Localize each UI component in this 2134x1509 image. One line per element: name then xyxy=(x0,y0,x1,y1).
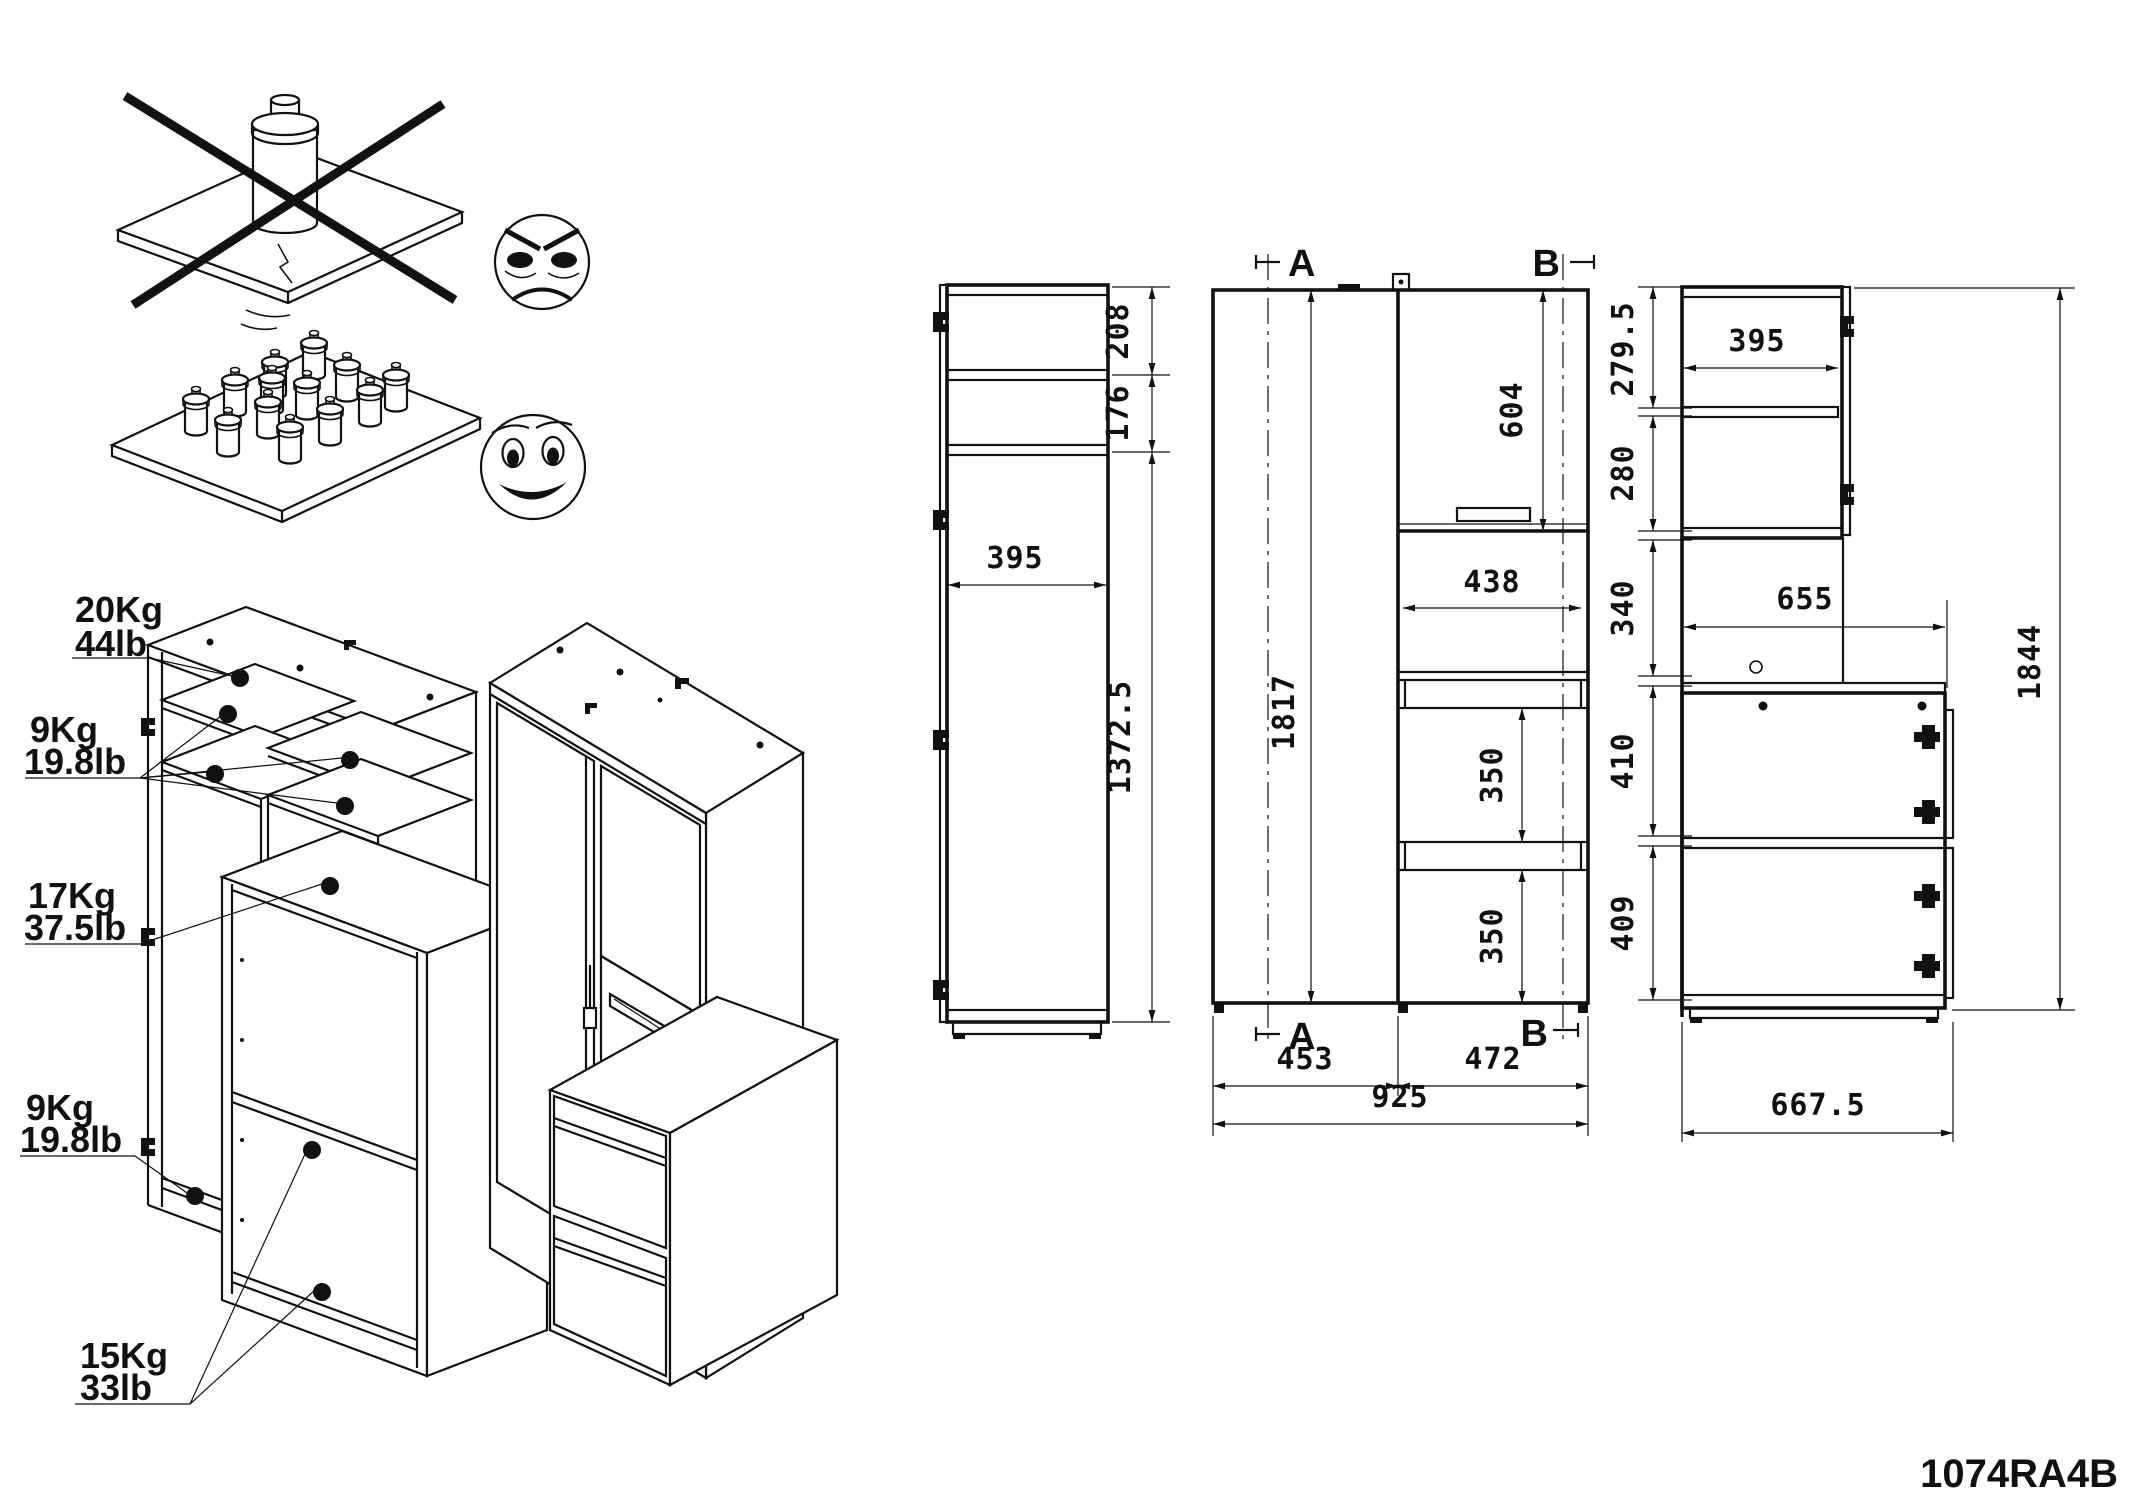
dim-gap-upper: 350 xyxy=(1475,746,1510,803)
load-label-top-lb: 44lb xyxy=(75,623,147,664)
load-label-bottom-lb: 19.8lb xyxy=(20,1119,122,1160)
dim-width-right: 472 xyxy=(1464,1042,1521,1077)
dim-section-3: 340 xyxy=(1606,579,1641,636)
load-limit-labels: 20Kg 44lb 9Kg 19.8lb 17Kg 37.5lb 9Kg 19.… xyxy=(20,589,168,1408)
load-label-shelves-lb: 19.8lb xyxy=(24,741,126,782)
smiley-face-icon xyxy=(481,415,585,519)
dim-section-1: 279.5 xyxy=(1606,301,1641,396)
dim-width-total: 925 xyxy=(1371,1080,1428,1115)
foot xyxy=(1398,1003,1408,1013)
foot xyxy=(1214,1003,1224,1013)
stress-marks xyxy=(241,310,290,329)
dim-height-total: 1844 xyxy=(2013,624,2048,700)
dim-section-4: 410 xyxy=(1606,732,1641,789)
dim-width-left: 453 xyxy=(1276,1042,1333,1077)
wall-batten xyxy=(1338,284,1360,290)
door-handle-slot xyxy=(1457,508,1530,521)
cable-hole xyxy=(1750,661,1762,673)
warning-good-illustration xyxy=(112,331,585,523)
dim-niche-width: 438 xyxy=(1463,565,1520,600)
dim-height: 1817 xyxy=(1267,674,1302,750)
drawer-slide-icons xyxy=(1914,725,1940,978)
dim-main-section: 1372.5 xyxy=(1103,680,1138,794)
isometric-open-view: 20Kg 44lb 9Kg 19.8lb 17Kg 37.5lb 9Kg 19.… xyxy=(20,589,547,1408)
side-view: 208 176 1372.5 395 xyxy=(933,285,1170,1039)
technical-drawing: 20Kg 44lb 9Kg 19.8lb 17Kg 37.5lb 9Kg 19.… xyxy=(0,0,2134,1509)
right-side-view: 655 279.5 280 340 xyxy=(1606,287,2075,1142)
dim-section-2: 280 xyxy=(1606,444,1641,501)
shelf-board xyxy=(947,445,1108,455)
load-label-worktop-lb: 37.5lb xyxy=(24,907,126,948)
foot xyxy=(1578,1003,1588,1013)
dim-depth-total: 667.5 xyxy=(1770,1088,1865,1123)
cabinet-outline xyxy=(1213,290,1588,1003)
lower-cabinet-outline xyxy=(1682,693,1945,1008)
section-label-a-top: A xyxy=(1288,243,1315,285)
dim-gap-lower: 350 xyxy=(1475,907,1510,964)
shelf-board xyxy=(1682,407,1838,417)
load-label-lower-lb: 33lb xyxy=(80,1367,152,1408)
dim-mid-section: 176 xyxy=(1101,384,1136,441)
angry-face-icon xyxy=(495,215,589,309)
shelf-board xyxy=(947,370,1108,380)
dim-section-5: 409 xyxy=(1606,894,1641,951)
warning-bad-illustration xyxy=(118,95,589,329)
dim-depth-upper: 655 xyxy=(1776,582,1833,617)
assembly-instruction-sheet: 20Kg 44lb 9Kg 19.8lb 17Kg 37.5lb 9Kg 19.… xyxy=(0,0,2134,1509)
dim-door-height: 604 xyxy=(1495,381,1530,438)
isometric-closed-view xyxy=(490,623,837,1385)
front-view: A A B B 1817 604 438 350 350 453 xyxy=(1213,243,1594,1136)
section-label-b-top: B xyxy=(1533,243,1560,285)
extension-ticks xyxy=(1638,287,1692,1000)
dim-door-width: 395 xyxy=(1728,324,1785,359)
carcass-outline xyxy=(947,285,1108,1022)
section-line-a: A A xyxy=(1256,243,1315,1058)
section-line-b: B B xyxy=(1521,243,1594,1055)
bottom-board xyxy=(1682,995,1945,1008)
part-number: 1074RA4B xyxy=(1920,1452,2118,1496)
dim-top-section: 208 xyxy=(1101,302,1136,359)
section-label-b-bottom: B xyxy=(1521,1013,1548,1055)
dim-depth: 395 xyxy=(986,541,1043,576)
